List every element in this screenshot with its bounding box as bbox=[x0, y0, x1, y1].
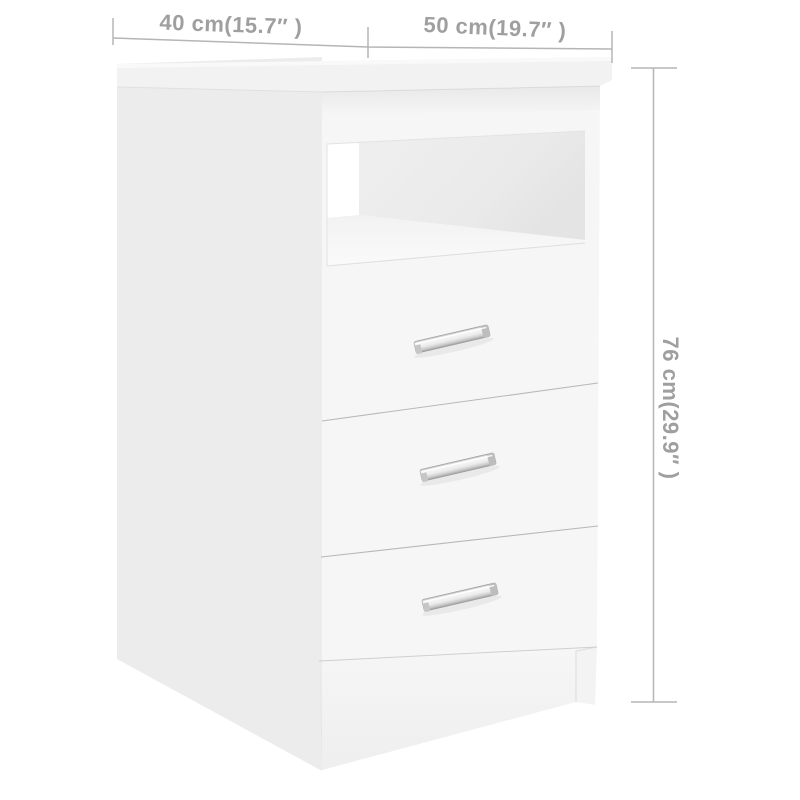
compartment-left-wall bbox=[327, 142, 359, 218]
width-dimension-label: 40 cm(15.7″ ) bbox=[159, 10, 303, 41]
open-compartment bbox=[327, 131, 585, 266]
plinth-right-foot bbox=[576, 647, 597, 705]
plinth-shade bbox=[319, 647, 597, 770]
height-dimension-label: 76 cm(29.9″ ) bbox=[657, 336, 683, 479]
product-dimension-image: 40 cm(15.7″ ) 50 cm(19.7″ ) 76 cm(29.9″ … bbox=[0, 0, 800, 800]
side-panel bbox=[117, 57, 322, 771]
